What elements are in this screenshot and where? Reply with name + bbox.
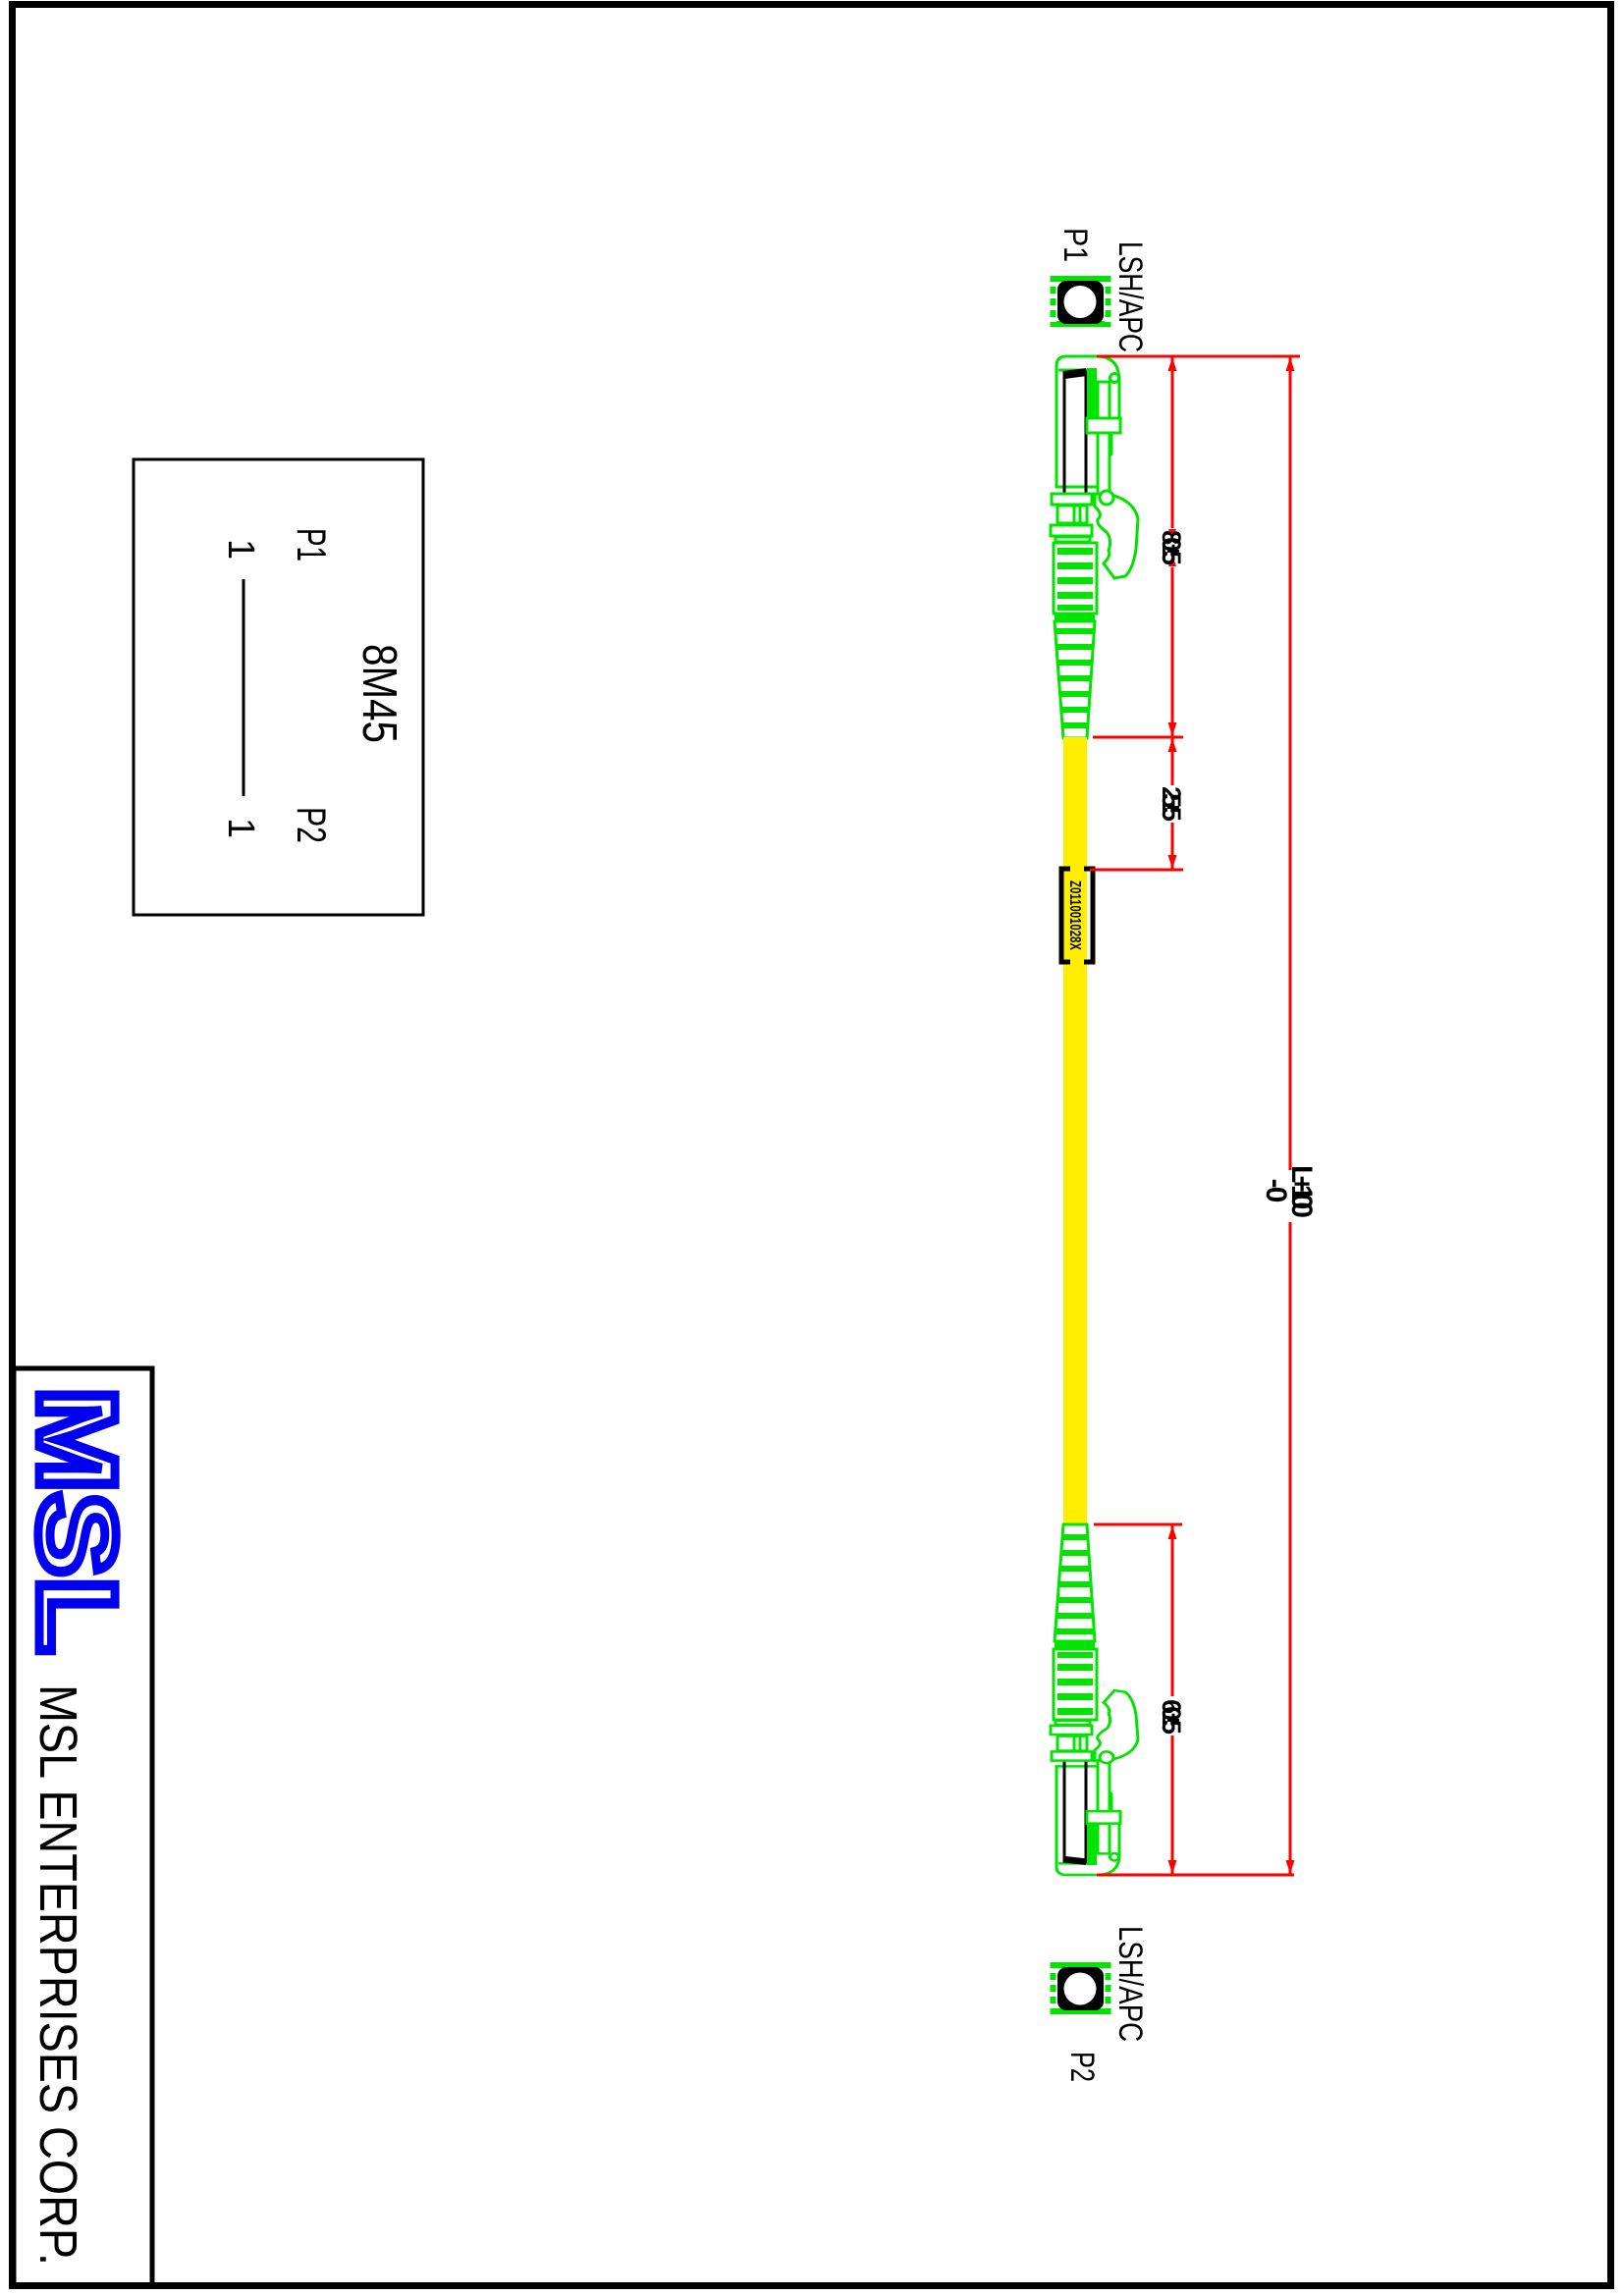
svg-text:LSH/APC: LSH/APC — [1111, 241, 1149, 352]
svg-text:MSL ENTERPRISES CORP.: MSL ENTERPRISES CORP. — [28, 1684, 87, 2266]
svg-text:P2: P2 — [289, 807, 335, 843]
svg-text:1: 1 — [220, 539, 261, 560]
svg-text:P1: P1 — [1056, 228, 1094, 262]
svg-text:-0: -0 — [1260, 1179, 1292, 1202]
svg-text:8M45: 8M45 — [352, 644, 406, 743]
svg-text:P2: P2 — [1063, 2052, 1101, 2082]
svg-text:MSL: MSL — [16, 1387, 138, 1654]
svg-text:Z011001028X: Z011001028X — [1066, 881, 1083, 950]
svg-text:LSH/APC: LSH/APC — [1111, 1926, 1149, 2042]
svg-text:P1: P1 — [289, 528, 335, 561]
svg-text:1: 1 — [220, 818, 261, 838]
svg-text:25±5: 25±5 — [1157, 786, 1186, 822]
svg-text:60±5: 60±5 — [1157, 1699, 1186, 1735]
